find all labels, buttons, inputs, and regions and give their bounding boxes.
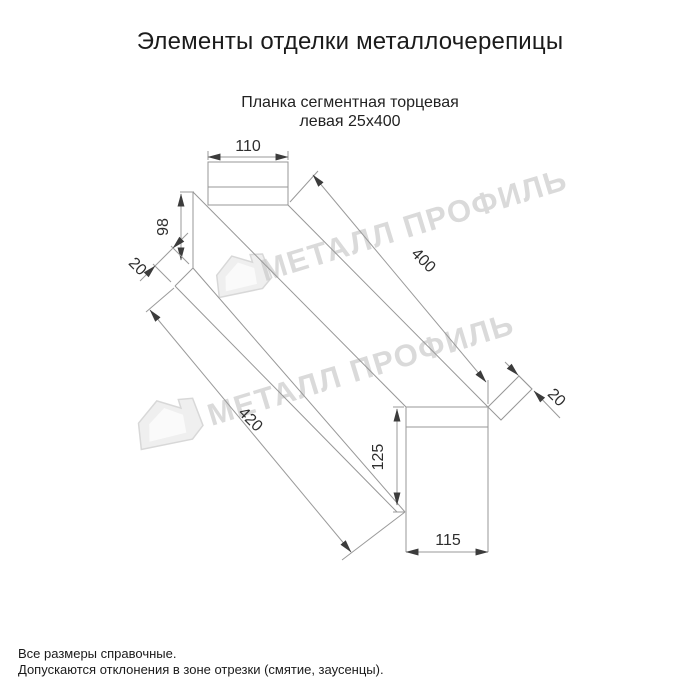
- dimension-label-length: 400: [408, 245, 439, 276]
- dimension-label-right-flange: 20: [544, 386, 569, 411]
- watermark-upper: МЕТАЛЛ ПРОФИЛЬ: [209, 156, 572, 302]
- dimension-label-left-height: 98: [155, 218, 172, 236]
- dimension-label-top-width: 110: [235, 138, 261, 155]
- technical-drawing: МЕТАЛЛ ПРОФИЛЬ МЕТАЛЛ ПРОФИЛЬ: [0, 0, 700, 700]
- footer-notes: Все размеры справочные. Допускаются откл…: [18, 646, 384, 678]
- watermark-lower: МЕТАЛЛ ПРОФИЛЬ: [129, 294, 518, 454]
- footer-note-1: Все размеры справочные.: [18, 646, 384, 662]
- metal-profile-logo-icon: [129, 390, 206, 454]
- dimension-top-width: 110: [208, 138, 288, 160]
- watermark-text: МЕТАЛЛ ПРОФИЛЬ: [256, 162, 571, 289]
- footer-note-2: Допускаются отклонения в зоне отрезки (с…: [18, 662, 384, 678]
- dimension-right-flange: 20: [505, 362, 569, 418]
- dimension-right-height: 125: [370, 407, 404, 512]
- dimension-left-flange: 20: [125, 233, 189, 282]
- dimension-bottom-width: 115: [406, 532, 488, 552]
- dimension-label-right-height: 125: [370, 444, 387, 471]
- catalog-page: Элементы отделки металлочерепицы Планка …: [0, 0, 700, 700]
- dimension-label-bottom-width: 115: [435, 532, 461, 549]
